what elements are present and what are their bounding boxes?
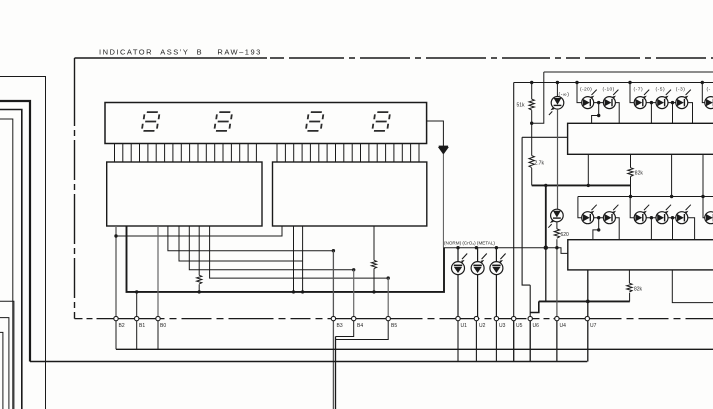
- svg-text:(-5): (-5): [656, 87, 666, 93]
- svg-text:INDICATOR ASS’Y B RAW–193: INDICATOR ASS’Y B RAW–193: [99, 47, 262, 56]
- svg-text:(-∞): (-∞): [559, 92, 570, 98]
- svg-text:B3: B3: [337, 323, 343, 329]
- svg-text:U2: U2: [479, 323, 486, 329]
- svg-text:U6: U6: [533, 323, 540, 329]
- svg-text:(-10): (-10): [603, 87, 615, 93]
- svg-text:U4: U4: [560, 323, 567, 329]
- svg-text:B5: B5: [391, 323, 397, 329]
- svg-text:B0: B0: [160, 323, 166, 329]
- svg-text:2.7k: 2.7k: [535, 161, 545, 167]
- svg-text:620: 620: [561, 232, 570, 238]
- svg-text:(-7): (-7): [634, 87, 644, 93]
- svg-text:51k: 51k: [517, 103, 526, 109]
- svg-text:B1: B1: [139, 323, 145, 329]
- svg-text:(-: (-: [707, 87, 711, 93]
- svg-text:U7: U7: [590, 323, 597, 329]
- svg-text:U3: U3: [499, 323, 506, 329]
- svg-text:(NORM) (CrO₂) (METAL): (NORM) (CrO₂) (METAL): [444, 240, 495, 245]
- svg-text:82k: 82k: [634, 287, 643, 293]
- svg-text:82k: 82k: [635, 171, 644, 177]
- svg-text:U1: U1: [461, 323, 468, 329]
- svg-text:B2: B2: [119, 323, 125, 329]
- svg-text:(-20): (-20): [580, 87, 592, 93]
- svg-text:U5: U5: [516, 323, 523, 329]
- svg-text:(-3): (-3): [676, 87, 686, 93]
- svg-text:B4: B4: [357, 323, 363, 329]
